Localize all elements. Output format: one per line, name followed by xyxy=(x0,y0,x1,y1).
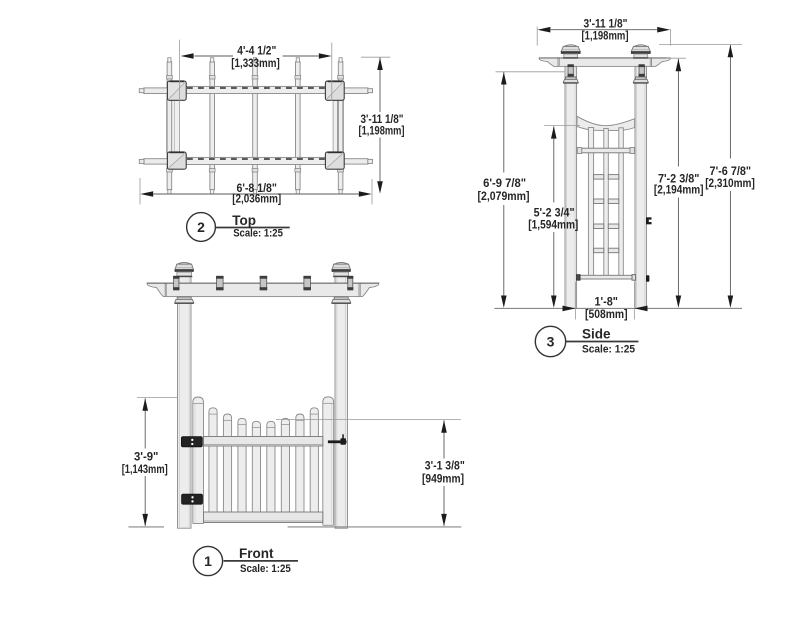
svg-text:[2,036mm]: [2,036mm] xyxy=(232,194,281,206)
svg-text:[2,079mm]: [2,079mm] xyxy=(478,191,530,203)
svg-text:6'-9 7/8": 6'-9 7/8" xyxy=(483,178,526,190)
svg-text:3'-9": 3'-9" xyxy=(134,451,159,463)
svg-text:3'-11 1/8": 3'-11 1/8" xyxy=(361,114,404,126)
svg-text:Scale: 1:25: Scale: 1:25 xyxy=(582,344,635,356)
svg-text:3'-1 3/8": 3'-1 3/8" xyxy=(425,461,465,473)
svg-text:[2,194mm]: [2,194mm] xyxy=(654,185,704,197)
svg-text:4'-4 1/2": 4'-4 1/2" xyxy=(237,46,276,58)
svg-text:5'-2 3/4": 5'-2 3/4" xyxy=(534,207,575,219)
svg-text:[949mm]: [949mm] xyxy=(422,474,464,486)
svg-text:3: 3 xyxy=(547,334,555,350)
svg-text:Side: Side xyxy=(582,327,611,342)
svg-text:1: 1 xyxy=(204,553,212,569)
svg-text:Top: Top xyxy=(232,213,256,228)
svg-text:Scale: 1:25: Scale: 1:25 xyxy=(233,228,283,240)
svg-text:[1,198mm]: [1,198mm] xyxy=(359,125,405,137)
svg-text:7'-2 3/8": 7'-2 3/8" xyxy=(658,174,700,186)
svg-text:7'-6 7/8": 7'-6 7/8" xyxy=(710,166,752,178)
svg-text:[1,143mm]: [1,143mm] xyxy=(122,464,168,476)
svg-text:[1,333mm]: [1,333mm] xyxy=(231,58,280,70)
svg-text:[1,198mm]: [1,198mm] xyxy=(582,30,629,42)
svg-text:3'-11 1/8": 3'-11 1/8" xyxy=(584,18,628,30)
svg-text:Scale: 1:25: Scale: 1:25 xyxy=(240,563,291,575)
svg-text:1'-8": 1'-8" xyxy=(594,297,618,309)
svg-text:[508mm]: [508mm] xyxy=(585,309,628,321)
svg-text:2: 2 xyxy=(197,219,205,235)
svg-text:[1,594mm]: [1,594mm] xyxy=(528,219,578,231)
svg-text:[2,310mm]: [2,310mm] xyxy=(705,178,755,190)
svg-text:Front: Front xyxy=(239,546,274,561)
